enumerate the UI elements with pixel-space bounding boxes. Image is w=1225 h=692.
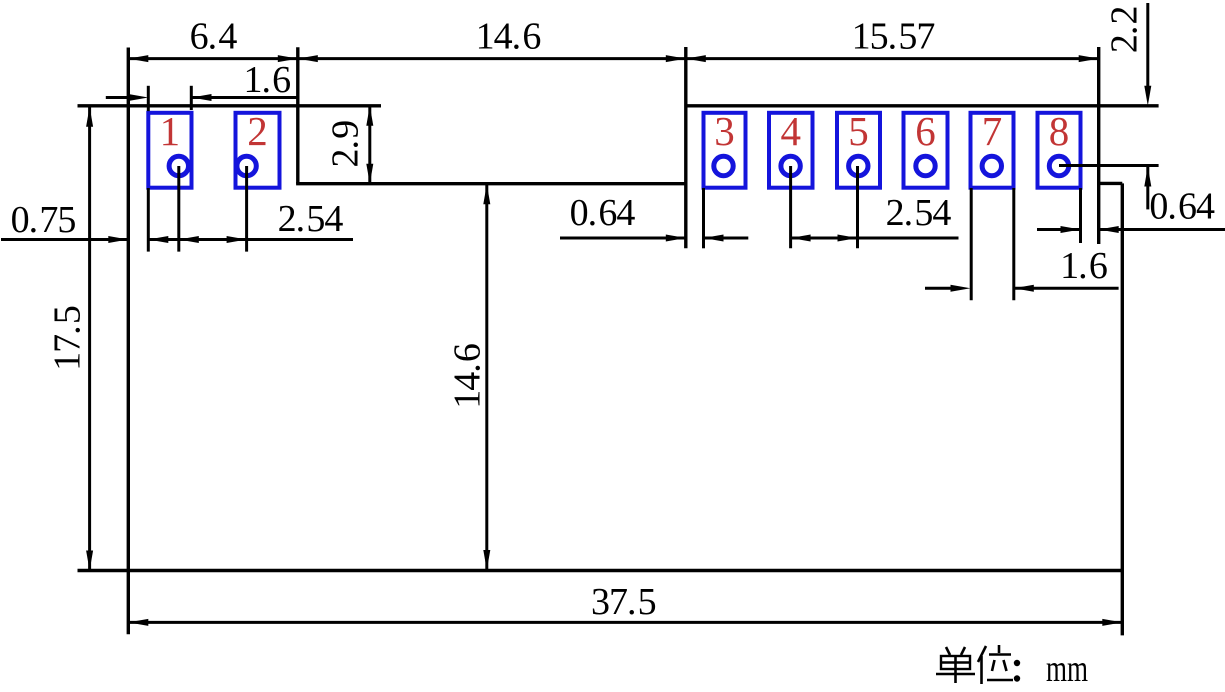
svg-text:1. 6: 1. 6 bbox=[1060, 245, 1107, 287]
svg-text:2. 2: 2. 2 bbox=[1104, 6, 1146, 53]
svg-text:4: 4 bbox=[781, 108, 802, 154]
svg-text:0. 75: 0. 75 bbox=[11, 199, 76, 241]
svg-text:37. 5: 37. 5 bbox=[591, 581, 656, 623]
svg-text:0. 64: 0. 64 bbox=[570, 192, 636, 234]
svg-text:2. 9: 2. 9 bbox=[325, 121, 367, 168]
svg-text:2. 54: 2. 54 bbox=[278, 198, 344, 240]
svg-text:2. 54: 2. 54 bbox=[886, 192, 952, 234]
svg-text:2: 2 bbox=[247, 108, 268, 154]
svg-text:14. 6: 14. 6 bbox=[447, 344, 489, 409]
svg-text:8: 8 bbox=[1049, 108, 1070, 154]
svg-text:1. 6: 1. 6 bbox=[243, 59, 290, 101]
svg-text:15. 57: 15. 57 bbox=[852, 16, 935, 58]
svg-text:17. 5: 17. 5 bbox=[47, 306, 89, 371]
svg-text:6. 4: 6. 4 bbox=[190, 16, 238, 58]
svg-text:14. 6: 14. 6 bbox=[476, 16, 541, 58]
svg-text:5: 5 bbox=[848, 108, 869, 154]
svg-text:7: 7 bbox=[982, 108, 1003, 154]
svg-text:1: 1 bbox=[160, 108, 181, 154]
svg-text:mm: mm bbox=[1046, 648, 1088, 690]
svg-text:3: 3 bbox=[714, 108, 735, 154]
svg-text:6: 6 bbox=[915, 108, 936, 154]
svg-text:0. 64: 0. 64 bbox=[1149, 186, 1215, 228]
